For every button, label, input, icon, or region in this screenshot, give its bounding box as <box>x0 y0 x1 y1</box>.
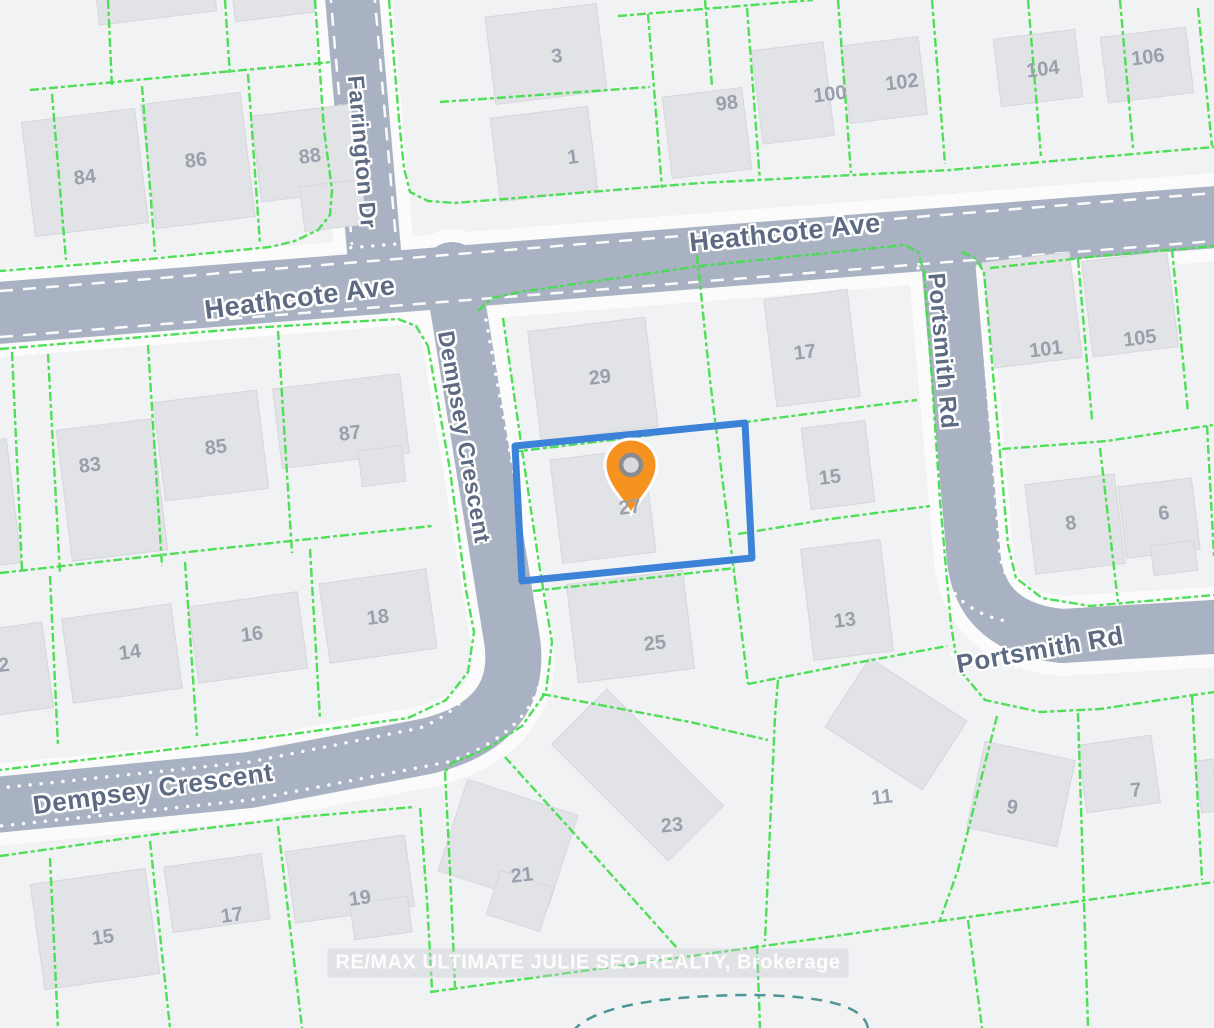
pin-hole <box>621 455 641 475</box>
building-footprint <box>764 289 861 406</box>
map-graphics <box>0 0 1214 1028</box>
parcel-boundary-line <box>30 62 332 90</box>
parcel-boundary-line <box>1207 426 1214 556</box>
building-footprint <box>1081 251 1178 357</box>
building-footprint <box>1100 27 1193 103</box>
building-footprint <box>56 419 167 562</box>
cul-de-sac-dashed-line <box>572 995 868 1028</box>
building-footprint <box>566 570 694 683</box>
building-footprint <box>141 92 255 228</box>
parcel-boundary-line <box>0 526 432 573</box>
parcel-boundary-line <box>932 0 945 164</box>
watermark: RE/MAX ULTIMATE JULIE SEO REALTY, Broker… <box>328 949 849 978</box>
building-footprint <box>0 438 21 566</box>
parcel-boundary-line <box>1002 425 1213 449</box>
building-footprint <box>95 0 217 25</box>
parcel-boundary-line <box>765 680 778 941</box>
building-footprint <box>485 4 607 105</box>
building-footprint <box>825 658 967 790</box>
building-footprint <box>801 420 875 509</box>
building-footprint <box>800 540 893 661</box>
building-footprint <box>231 0 315 22</box>
building-footprint <box>982 252 1082 368</box>
map-canvas[interactable]: 8486883198100102104106838587214161829272… <box>0 0 1214 1028</box>
building-footprint <box>841 37 928 124</box>
building-footprint <box>21 108 148 236</box>
building-footprint <box>662 87 751 178</box>
building-footprint <box>528 317 659 441</box>
building-footprint <box>1025 474 1125 574</box>
building-footprint <box>967 741 1075 846</box>
parcel-boundary-line <box>310 549 320 719</box>
building-footprint <box>164 854 270 933</box>
parcel-boundary-line <box>705 0 712 86</box>
building-footprint <box>153 390 268 501</box>
building-footprint <box>0 622 54 718</box>
parcel-boundary-line <box>968 920 982 1028</box>
building-footprint <box>358 445 406 486</box>
parcel-boundary-line <box>738 506 930 534</box>
building-footprint <box>188 592 308 684</box>
building-footprint <box>62 604 183 703</box>
parcel-boundary-line <box>723 400 917 425</box>
building-footprint <box>752 42 835 144</box>
parcel-boundary-line <box>1198 8 1212 146</box>
building-footprint <box>993 29 1083 106</box>
building-footprint <box>1078 735 1161 813</box>
building-footprint <box>552 689 724 861</box>
parcel-boundary-line <box>648 14 662 188</box>
building-footprint <box>1150 540 1197 575</box>
building-footprint <box>299 179 366 231</box>
building-footprint <box>350 896 412 940</box>
parcel-boundary-line <box>225 0 230 76</box>
parcel-boundary-line <box>48 354 60 574</box>
parcel-boundary-line <box>695 236 748 684</box>
building-footprint <box>30 868 160 989</box>
building-footprint <box>319 569 437 663</box>
building-footprint <box>490 106 598 201</box>
parcel-boundary-line <box>618 0 813 16</box>
parcel-boundary-line <box>50 576 58 746</box>
